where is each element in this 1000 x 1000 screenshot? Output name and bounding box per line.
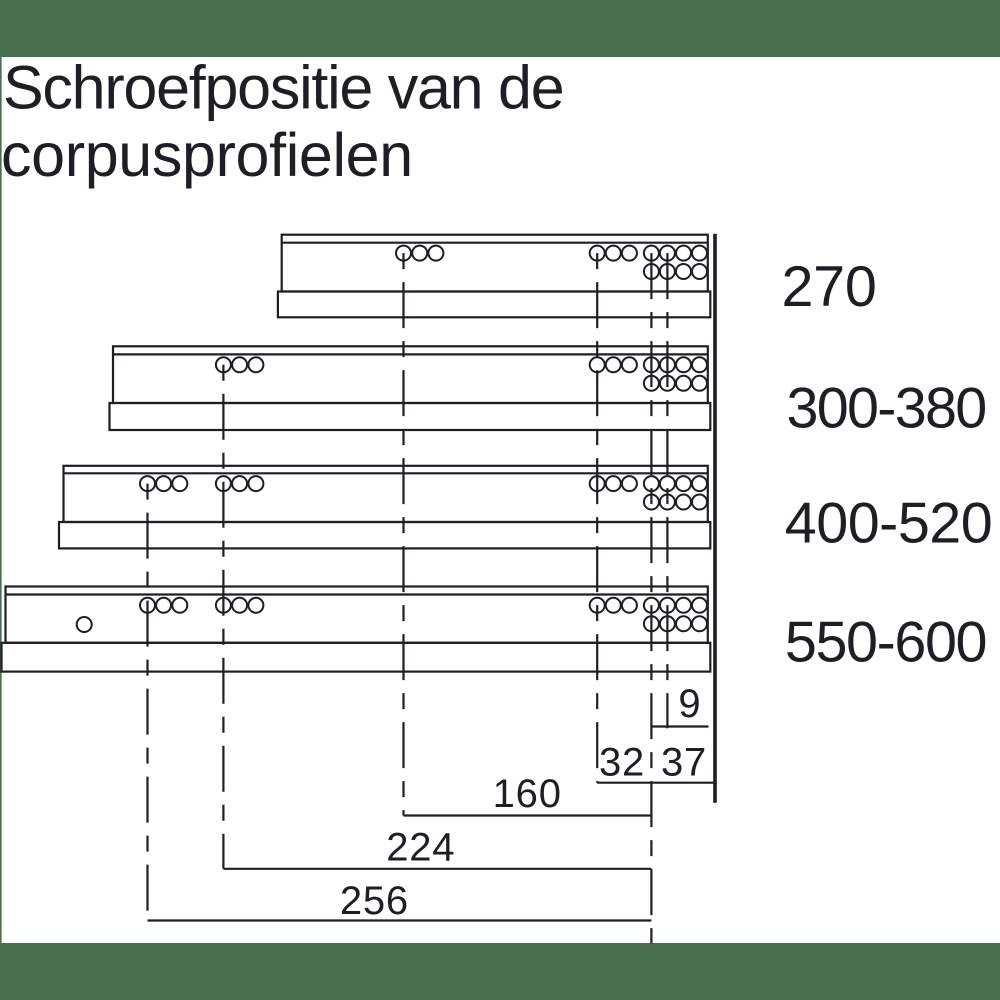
- svg-text:256: 256: [340, 879, 409, 923]
- svg-text:32: 32: [599, 740, 645, 784]
- svg-text:9: 9: [678, 682, 700, 726]
- svg-text:400-520: 400-520: [785, 492, 993, 556]
- svg-text:270: 270: [781, 255, 876, 319]
- svg-text:300-380: 300-380: [786, 377, 985, 441]
- svg-text:160: 160: [493, 772, 562, 816]
- svg-text:Schroefpositie van de: Schroefpositie van de: [3, 54, 563, 122]
- svg-text:corpusprofielen: corpusprofielen: [1, 121, 413, 189]
- svg-text:550-600: 550-600: [785, 611, 986, 675]
- svg-text:224: 224: [386, 826, 455, 870]
- svg-text:37: 37: [661, 740, 707, 784]
